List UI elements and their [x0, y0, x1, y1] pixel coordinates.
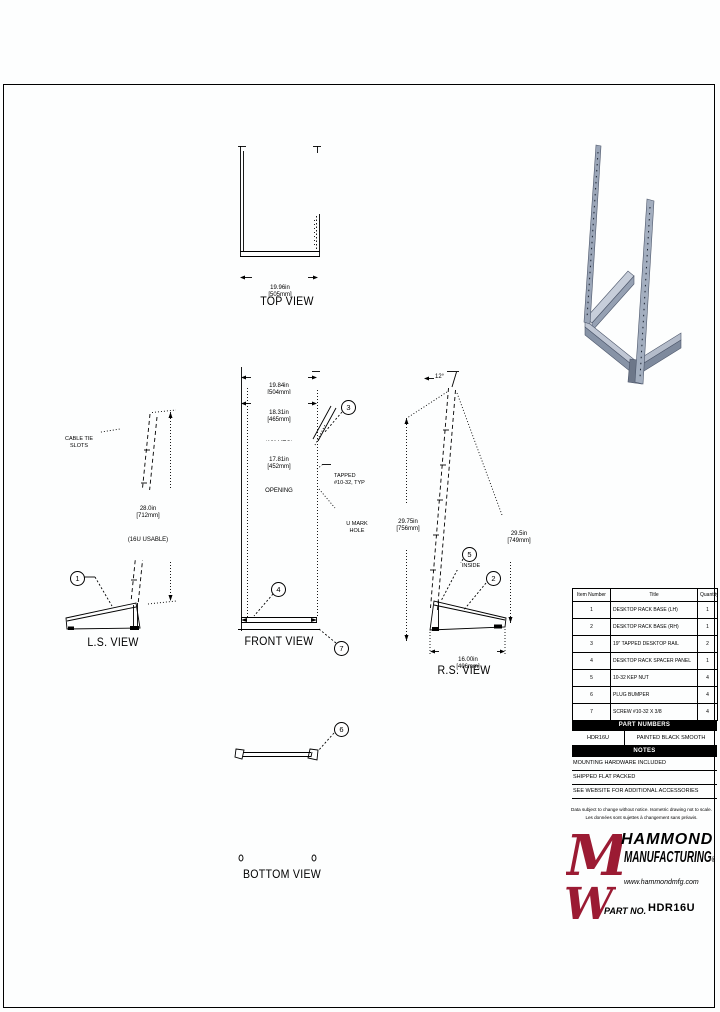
u-mark-annotation: U MARKHOLE	[337, 507, 377, 550]
hammond-w-logo-icon: W	[564, 877, 616, 925]
bottom-view-linework	[235, 733, 334, 861]
drawing-page: 19.96in[505mm] TOP VIEW 19.84in[504mm] 1…	[0, 0, 720, 1012]
ls-usable-dim: 28.0in[712mm] (16U USABLE)	[118, 490, 178, 560]
website-text: www.hammondmfg.com	[624, 879, 699, 886]
rs-angle-dim: 12°	[435, 374, 453, 382]
front-opening-dim: 17.81in[452mm] OPENING	[252, 441, 306, 511]
part-number-value: HDR16U	[572, 731, 625, 745]
registered-mark: ®	[712, 857, 715, 864]
svg-text:M: M	[566, 825, 622, 883]
note-item: SHIPPED FLAT PACKED	[572, 771, 717, 785]
svg-text:W: W	[564, 879, 616, 925]
balloon-3: 3	[341, 400, 356, 415]
table-row: 7SCREW #10-32 X 3/84	[573, 704, 718, 721]
cable-tie-annotation: CABLE TIESLOTS	[58, 422, 100, 465]
top-view-linework	[238, 146, 321, 280]
rs-rail-dim: 29.75in[756mm]	[386, 503, 430, 550]
front-view-label: FRONT VIEW	[240, 637, 317, 649]
inside-annotation: INSIDE	[453, 563, 489, 570]
disclaimer: Data subject to change without notice. I…	[563, 806, 720, 822]
balloon-1: 1	[70, 571, 85, 586]
table-row: 319" TAPPED DESKTOP RAIL2	[573, 636, 718, 653]
part-number-row: HDR16U PAINTED BLACK SMOOTH	[572, 731, 717, 746]
note-item: SEE WEBSITE FOR ADDITIONAL ACCESSORIES	[572, 785, 717, 799]
part-no-value: HDR16U	[648, 902, 695, 914]
tapped-annotation: TAPPED#10-32, TYP	[334, 459, 382, 502]
isometric-view	[584, 145, 681, 384]
balloon-6: 6	[334, 722, 349, 737]
part-no-label: PART NO.	[604, 906, 646, 916]
balloon-5: 5	[462, 547, 477, 562]
top-view-label: TOP VIEW	[250, 297, 324, 309]
part-numbers-banner: PART NUMBERS	[572, 720, 717, 731]
table-row: 2DESKTOP RACK BASE (RH)1	[573, 619, 718, 636]
col-title: Title	[611, 589, 698, 602]
rs-view-label: R.S. VIEW	[435, 666, 494, 678]
hammond-m-logo-icon: M	[566, 825, 622, 883]
table-row: 6PLUG BUMPER4	[573, 687, 718, 704]
parts-table-header: Item Number Title Quantity	[573, 589, 718, 602]
rs-height-dim: 29.5in[749mm]	[496, 515, 542, 562]
col-quantity: Quantity	[698, 589, 718, 602]
part-finish: PAINTED BLACK SMOOTH	[625, 731, 717, 745]
parts-table: Item Number Title Quantity 1DESKTOP RACK…	[572, 588, 718, 721]
table-row: 1DESKTOP RACK BASE (LH)1	[573, 602, 718, 619]
bottom-view-label: BOTTOM VIEW	[242, 870, 323, 882]
ls-view-label: L.S. VIEW	[84, 638, 143, 650]
notes-banner: NOTES	[572, 746, 717, 757]
balloon-4: 4	[271, 582, 286, 597]
note-item: MOUNTING HARDWARE INCLUDED	[572, 757, 717, 771]
table-row: 510-32 KEP NUT4	[573, 670, 718, 687]
balloon-7: 7	[334, 641, 349, 656]
table-row: 4DESKTOP RACK SPACER PANEL1	[573, 653, 718, 670]
brand-name-line1: HAMMOND	[621, 831, 713, 849]
balloon-2: 2	[486, 571, 501, 586]
brand-name-line2: MANUFACTURING®	[624, 849, 715, 867]
col-item-number: Item Number	[573, 589, 611, 602]
top-view-width-dim: 19.96in[505mm]	[252, 269, 308, 316]
notes-list: MOUNTING HARDWARE INCLUDED SHIPPED FLAT …	[572, 757, 717, 799]
